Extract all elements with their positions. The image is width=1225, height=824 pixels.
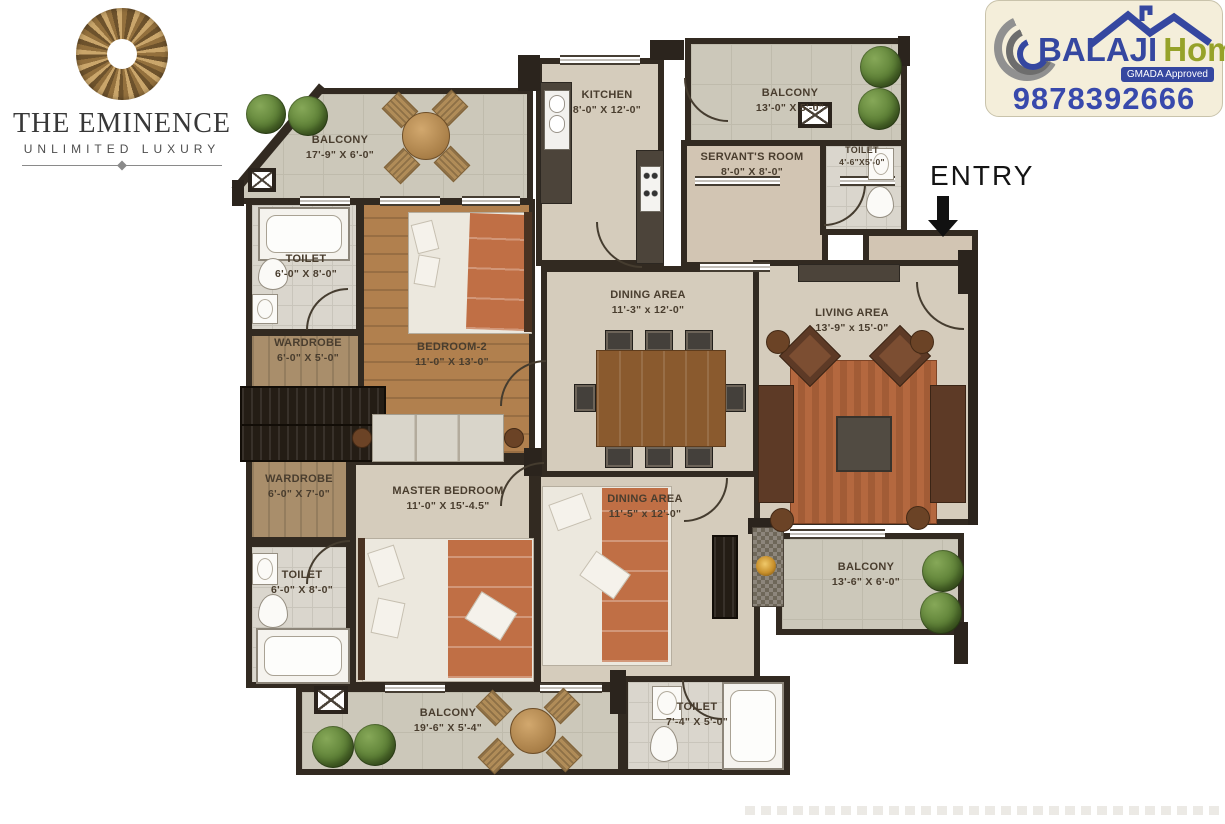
headboard <box>524 212 532 332</box>
room-dims: 11'-5" x 12'-0" <box>607 507 683 522</box>
room-name: TOILET <box>666 700 728 715</box>
tv-console <box>798 264 900 282</box>
brand-subtitle: UNLIMITED LUXURY <box>8 142 236 156</box>
room-label: TOILET 6'-0" X 8'-0" <box>271 568 333 598</box>
window <box>560 55 640 65</box>
decor-bowl <box>756 556 776 576</box>
room-name: BALCONY <box>756 86 824 101</box>
wardrobe-unit <box>240 386 386 426</box>
room-name: SERVANT'S ROOM <box>701 150 804 165</box>
dining-chair <box>685 446 713 468</box>
room-label: BALCONY 19'-6" X 5'-4" <box>414 706 482 736</box>
toilet-seat <box>866 186 894 218</box>
room-dims: 8'-0" X 8'-0" <box>701 165 804 180</box>
room-dims: 13'-9" x 15'-0" <box>815 321 889 336</box>
dining-table <box>596 350 726 447</box>
room-name: BEDROOM-2 <box>415 340 489 355</box>
window <box>385 683 445 693</box>
headboard <box>358 538 365 680</box>
bush <box>920 592 962 634</box>
dining-chair <box>574 384 596 412</box>
room-label: DINING AREA 11'-3" x 12'-0" <box>610 288 686 318</box>
room-dims: 17'-9" X 6'-0" <box>306 148 374 163</box>
faint-watermark <box>745 806 1223 815</box>
window <box>790 529 885 539</box>
dining-chair <box>645 330 673 352</box>
shaft-cross-icon <box>314 686 348 714</box>
room-name: BALCONY <box>414 706 482 721</box>
room-name: LIVING AREA <box>815 306 889 321</box>
room-dims: 8'-0" X 12'-0" <box>573 103 641 118</box>
agency-name: BALAJIHomes <box>1038 31 1225 69</box>
room-label: LIVING AREA 13'-9" x 15'-0" <box>815 306 889 336</box>
agency-phone: 9878392666 <box>986 81 1222 117</box>
room-dims: 13'-6" X 6'-0" <box>832 575 900 590</box>
wall-pier <box>968 255 978 525</box>
wall-pier <box>518 55 540 91</box>
wall-pier <box>610 670 626 714</box>
side-table <box>766 330 790 354</box>
room-dims: 6'-0" X 8'-0" <box>275 267 337 282</box>
bathtub <box>722 682 784 770</box>
window <box>462 196 520 206</box>
brand-divider <box>22 165 222 172</box>
room-name: DINING AREA <box>607 492 683 507</box>
wall-pier <box>954 622 968 664</box>
wardrobe-unit <box>712 535 738 619</box>
room-dims: 4'-6"X5'-0" <box>839 157 885 169</box>
agency-card: BALAJIHomes GMADA Approved 9878392666 <box>985 0 1223 117</box>
window <box>380 196 440 206</box>
room-dims: 13'-0" X 5'-0" <box>756 101 824 116</box>
room-name: KITCHEN <box>573 88 641 103</box>
room-name: BALCONY <box>832 560 900 575</box>
diamond-ornament-icon <box>117 161 127 171</box>
bush <box>922 550 964 592</box>
shaft-cross-icon <box>248 168 276 192</box>
bush <box>288 96 328 136</box>
entry-arrow-icon <box>928 196 958 237</box>
fridge <box>544 90 570 150</box>
room-dims: 11'-0" X 15'-4.5" <box>392 499 503 514</box>
room-name: TOILET <box>275 252 337 267</box>
bush <box>860 46 902 88</box>
room-dims: 19'-6" X 5'-4" <box>414 721 482 736</box>
side-table <box>770 508 794 532</box>
developer-logo: THE EMINENCE UNLIMITED LUXURY <box>8 8 236 172</box>
room-name: MASTER BEDROOM <box>392 484 503 499</box>
agency-name-primary: BALAJI <box>1038 31 1157 68</box>
side-table <box>910 330 934 354</box>
room-name: WARDROBE <box>265 472 333 487</box>
bush <box>354 724 396 766</box>
room-label: MASTER BEDROOM 11'-0" X 15'-4.5" <box>392 484 503 514</box>
room-label: WARDROBE 6'-0" X 7'-0" <box>265 472 333 502</box>
room-name: DINING AREA <box>610 288 686 303</box>
loveseat <box>372 414 504 462</box>
brand-title: THE EMINENCE <box>8 108 236 140</box>
room-name: TOILET <box>839 144 885 157</box>
window <box>540 683 602 693</box>
bush <box>246 94 286 134</box>
room-label: DINING AREA 11'-5" x 12'-0" <box>607 492 683 522</box>
room-label: BALCONY 17'-9" X 6'-0" <box>306 133 374 163</box>
entry-label: ENTRY <box>930 160 1034 192</box>
room-label: TOILET 4'-6"X5'-0" <box>839 144 885 168</box>
window <box>300 196 350 206</box>
approval-badge: GMADA Approved <box>1121 67 1214 82</box>
room-label: TOILET 6'-0" X 8'-0" <box>275 252 337 282</box>
room-label: BALCONY 13'-0" X 5'-0" <box>756 86 824 116</box>
room-name: WARDROBE <box>274 336 342 351</box>
room-label: BALCONY 13'-6" X 6'-0" <box>832 560 900 590</box>
room-name: TOILET <box>271 568 333 583</box>
room-dims: 11'-3" x 12'-0" <box>610 303 686 318</box>
room-dims: 11'-0" X 13'-0" <box>415 355 489 370</box>
room-dims: 6'-0" X 8'-0" <box>271 583 333 598</box>
wall-pier <box>650 40 684 60</box>
stove <box>640 166 661 212</box>
eminence-sunburst-icon <box>76 8 168 100</box>
side-table <box>504 428 524 448</box>
bush <box>858 88 900 130</box>
room-dims: 6'-0" X 7'-0" <box>265 487 333 502</box>
agency-name-secondary: Homes <box>1163 31 1225 68</box>
dining-chair <box>605 330 633 352</box>
sink <box>252 294 278 324</box>
side-table <box>352 428 372 448</box>
room-dims: 7'-4" X 5'-0" <box>666 715 728 730</box>
side-table <box>906 506 930 530</box>
patio-table <box>402 112 450 160</box>
room-label: TOILET 7'-4" X 5'-0" <box>666 700 728 730</box>
patio-table <box>510 708 556 754</box>
floor-plan-sheet: THE EMINENCE UNLIMITED LUXURY BALAJIHome… <box>0 0 1225 824</box>
bathtub <box>256 628 350 684</box>
room-label: WARDROBE 6'-0" X 5'-0" <box>274 336 342 366</box>
bed-blanket <box>466 213 530 331</box>
toilet-seat <box>258 594 288 628</box>
dining-chair <box>724 384 746 412</box>
sofa <box>930 385 966 503</box>
toilet-seat <box>650 726 678 762</box>
dining-chair <box>605 446 633 468</box>
dining-chair <box>645 446 673 468</box>
window <box>700 262 770 272</box>
room-label: SERVANT'S ROOM 8'-0" X 8'-0" <box>701 150 804 180</box>
room-name: BALCONY <box>306 133 374 148</box>
sofa <box>758 385 794 503</box>
dining-chair <box>685 330 713 352</box>
room-label: KITCHEN 8'-0" X 12'-0" <box>573 88 641 118</box>
wall-pier <box>232 180 244 206</box>
bush <box>312 726 354 768</box>
coffee-table <box>836 416 892 472</box>
room-dims: 6'-0" X 5'-0" <box>274 351 342 366</box>
room-label: BEDROOM-2 11'-0" X 13'-0" <box>415 340 489 370</box>
